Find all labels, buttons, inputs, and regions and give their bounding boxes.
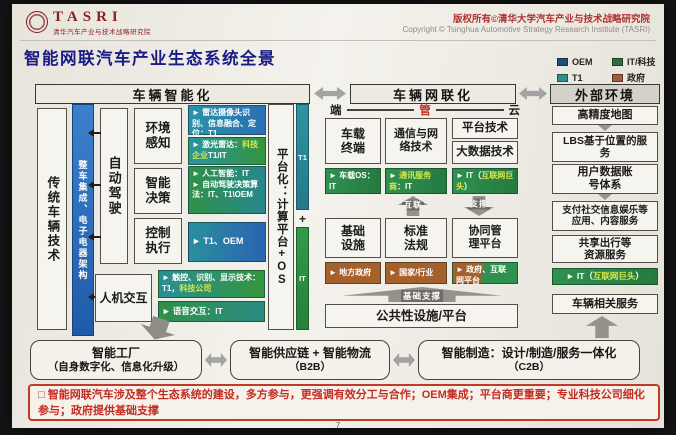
label-duan: 端 xyxy=(330,102,342,118)
tag-local-gov: ► 地方政府 xyxy=(325,262,381,284)
slide: TASRI 清华汽车产业与技术战略研究院 版权所有©清华大学汽车产业与技术战略研… xyxy=(12,4,664,428)
legend-label-it: IT/科技 xyxy=(627,55,667,68)
footer-note-box: □ 智能网联汽车涉及整个生态系统的建设，多方参与，更强调有效分工与合作；OEM集… xyxy=(28,384,660,421)
tag-text: ► xyxy=(389,171,399,180)
tag-line: ► 人工智能：IT xyxy=(192,169,262,180)
small-down-arrow-icon xyxy=(598,125,612,131)
box-standards: 标准法规 xyxy=(385,218,447,258)
tag-gov-internet: ► 政府、互联网平台 xyxy=(452,262,518,284)
double-arrow-icon xyxy=(205,353,227,367)
box-line: 智能供应链 + 智能物流 xyxy=(249,346,371,361)
box-lbs: LBS基于位置的服务 xyxy=(552,132,658,162)
page-number: 7 xyxy=(12,420,664,430)
label-guan: 管 xyxy=(419,102,431,118)
tag-text: ） xyxy=(635,271,644,282)
down-arrow-support: 支撑 xyxy=(464,196,494,216)
label-yun: 云 xyxy=(509,102,521,118)
tasri-emblem-icon xyxy=(26,11,48,33)
up-arrow-interlink: 互联 xyxy=(398,196,428,216)
box-hd-map: 高精度地图 xyxy=(552,106,658,125)
footer-note: □ 智能网联汽车涉及整个生态系统的建设，多方参与，更强调有效分工与合作；OEM集… xyxy=(38,389,645,417)
duan-guan-yun: 端 管 云 xyxy=(330,103,520,117)
box-comm-network: 通信与网络技术 xyxy=(385,118,447,164)
double-arrow-icon xyxy=(314,87,346,100)
tag-cloud-it: ► IT（互联网巨头） xyxy=(452,168,518,194)
box-env-perception-label: 环境感知 xyxy=(134,108,182,164)
legend-row: T1 政府 xyxy=(557,71,667,84)
tag-hmi-1: ► 触控、识别、显示技术：T1，科技公司 xyxy=(158,270,265,298)
tag-decision: ► 人工智能：IT ► 自动驾驶决策算法：IT、T1\OEM xyxy=(188,166,266,214)
tasri-logo-subtitle: 清华汽车产业与技术战略研究院 xyxy=(53,26,151,36)
header-vehicle-intelligence: 车辆智能化 xyxy=(35,84,310,104)
box-line: 智能工厂 xyxy=(92,346,140,361)
tag-national-industry: ► 国家/行业 xyxy=(385,262,447,284)
tag-text: T1/IT xyxy=(208,151,227,160)
box-decision-label: 智能决策 xyxy=(134,168,182,214)
up-arrow-icon xyxy=(586,316,618,338)
box-auto-driving: 自动驾驶 xyxy=(100,108,128,264)
tag-text: ► 激光雷达： xyxy=(192,140,242,149)
box-hmi-label: 人机交互 xyxy=(95,274,152,322)
box-shared-mobility: 共享出行等资源服务 xyxy=(552,235,658,263)
box-platformization: 平台化：计算平台+OS xyxy=(268,104,294,330)
box-line: 智能制造：设计/制造/服务一体化 xyxy=(442,346,617,361)
tag-text: ：IT xyxy=(397,182,412,191)
legend-row: OEM IT/科技 xyxy=(557,55,667,68)
header-external-env: 外部环境 xyxy=(550,84,660,104)
box-public-facilities: 公共性设施/平台 xyxy=(325,304,518,328)
connector-line xyxy=(347,109,415,111)
tag-onboard-os: ► 车载OS：IT xyxy=(325,168,381,194)
box-platform-tech: 平台技术 xyxy=(452,118,518,139)
connector-line xyxy=(436,109,504,111)
box-infrastructure: 基础设施 xyxy=(325,218,381,258)
double-arrow-icon xyxy=(519,87,547,100)
box-smart-factory: 智能工厂 （自身数字化、信息化升级） xyxy=(30,340,202,380)
legend-swatch-t1 xyxy=(557,74,568,82)
box-onboard-terminal: 车载终端 xyxy=(325,118,381,164)
bar-t1: T1 xyxy=(296,104,309,210)
tag-it-giants: ► IT（互联网巨头） xyxy=(552,268,658,285)
box-payment-social: 支付社交信息娱乐等应用、内容服务 xyxy=(552,201,658,231)
arrow-label: 基础支撑 xyxy=(401,290,443,302)
photo-background: TASRI 清华汽车产业与技术战略研究院 版权所有©清华大学汽车产业与技术战略研… xyxy=(0,0,676,435)
box-smart-manufacturing: 智能制造：设计/制造/服务一体化 （C2B） xyxy=(418,340,640,380)
box-line: （B2B） xyxy=(289,361,331,374)
small-down-arrow-icon xyxy=(598,194,612,200)
box-user-data: 用户数据账号体系 xyxy=(552,164,658,194)
left-arrow-icon xyxy=(94,132,101,134)
header-divider xyxy=(20,40,656,41)
box-bigdata-tech: 大数据技术 xyxy=(452,141,518,164)
tag-text: ► IT（ xyxy=(456,171,481,180)
copyright-en: Copyright © Tsinghua Automotive Strategy… xyxy=(403,25,651,34)
legend-swatch-oem xyxy=(557,58,568,66)
legend-swatch-gov xyxy=(612,74,623,82)
tag-text-highlight: 互联网巨头 xyxy=(593,271,636,282)
legend-label-t1: T1 xyxy=(572,73,612,83)
base-support-arrow: 基础支撑 xyxy=(342,287,502,302)
tasri-logo: TASRI xyxy=(53,9,123,26)
page-title: 智能网联汽车产业生态系统全景 xyxy=(24,45,276,69)
header-vehicle-connectivity: 车辆网联化 xyxy=(350,84,516,104)
arrow-label: 支撑 xyxy=(468,198,490,209)
tag-control: ► T1、OEM xyxy=(188,222,266,262)
legend: OEM IT/科技 T1 政府 xyxy=(557,55,667,87)
tag-text: ） xyxy=(464,182,472,191)
box-vehicle-services: 车辆相关服务 xyxy=(552,294,658,314)
tag-telecom: ► 通讯服务商：IT xyxy=(385,168,447,194)
tag-env-perception-1: ► 雷达摄像头识别、信息融合、定位：T1 xyxy=(188,105,266,135)
arrow-label: 互联 xyxy=(402,200,424,211)
box-line: （C2B） xyxy=(508,361,550,374)
tag-env-perception-2: ► 激光雷达：科技企业T1/IT xyxy=(188,137,266,165)
tag-text-highlight: 科技公司 xyxy=(179,284,211,293)
left-arrow-icon xyxy=(94,236,101,238)
tag-text: ► IT（ xyxy=(566,271,593,282)
box-traditional-vehicle-tech: 传统车辆技术 xyxy=(37,108,67,330)
box-control-label: 控制执行 xyxy=(134,218,182,264)
bar-vehicle-integration: 整车集成、电子电器架构 xyxy=(72,104,94,336)
legend-label-gov: 政府 xyxy=(627,71,667,84)
legend-label-oem: OEM xyxy=(572,57,612,67)
copyright-cn: 版权所有©清华大学汽车产业与技术战略研究院 xyxy=(453,11,650,25)
left-arrow-icon xyxy=(94,184,101,186)
box-smart-supply-chain: 智能供应链 + 智能物流 （B2B） xyxy=(230,340,390,380)
tag-text: ► 政府、 xyxy=(456,265,490,274)
box-coord-platform: 协同管理平台 xyxy=(452,218,518,258)
tag-hmi-2: ► 语音交互：IT xyxy=(158,301,265,322)
double-arrow-icon xyxy=(393,353,415,367)
box-line: （自身数字化、信息化升级） xyxy=(48,361,185,374)
bar-plus: + xyxy=(294,211,311,226)
bar-it: IT xyxy=(296,227,309,330)
tag-line: ► 自动驾驶决策算法：IT、T1\OEM xyxy=(192,180,262,201)
legend-swatch-it xyxy=(612,58,623,66)
